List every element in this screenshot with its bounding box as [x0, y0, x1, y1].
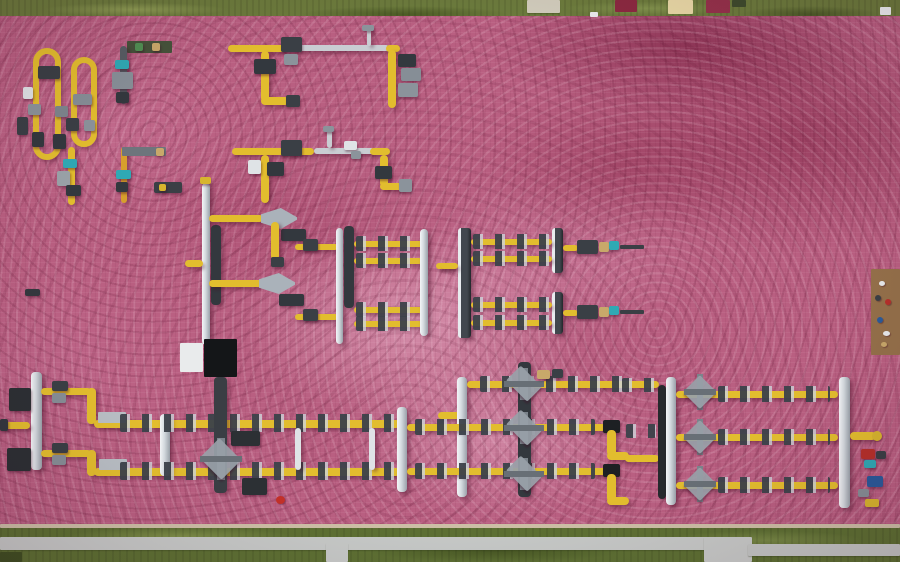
- aerial-photo-gas-station: [0, 0, 900, 562]
- photo-vignette: [0, 0, 900, 562]
